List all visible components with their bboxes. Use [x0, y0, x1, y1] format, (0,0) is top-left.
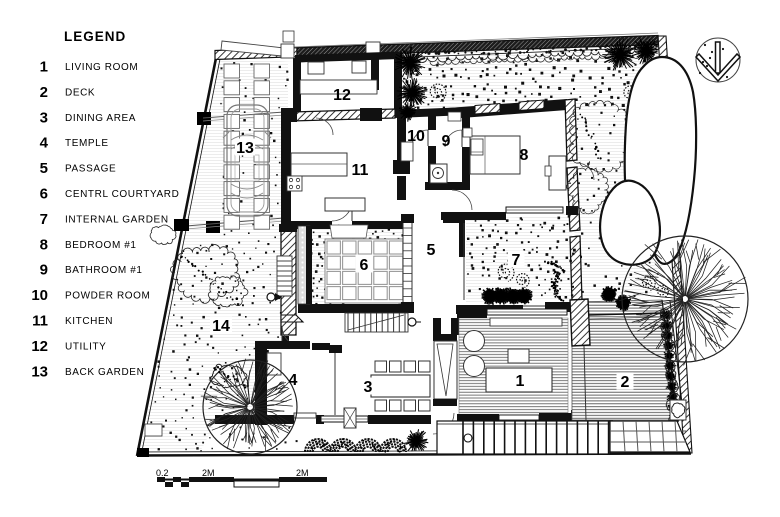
svg-text:3: 3: [364, 379, 373, 396]
svg-text:9: 9: [442, 133, 451, 150]
svg-text:13: 13: [31, 363, 48, 380]
svg-text:UTILITY: UTILITY: [65, 341, 106, 352]
svg-text:POWDER ROOM: POWDER ROOM: [65, 291, 151, 302]
svg-text:1: 1: [516, 373, 525, 390]
svg-text:LIVING ROOM: LIVING ROOM: [65, 62, 138, 73]
svg-text:DECK: DECK: [65, 87, 95, 98]
svg-text:BATHROOM #1: BATHROOM #1: [65, 265, 143, 276]
svg-text:4: 4: [40, 135, 49, 152]
svg-text:3: 3: [40, 109, 48, 126]
svg-text:BEDROOM #1: BEDROOM #1: [65, 240, 137, 251]
svg-text:DINING AREA: DINING AREA: [65, 113, 136, 124]
svg-text:13: 13: [236, 140, 254, 157]
svg-text:5: 5: [427, 242, 436, 259]
svg-text:KITCHEN: KITCHEN: [65, 316, 113, 327]
svg-text:INTERNAL GARDEN: INTERNAL GARDEN: [65, 214, 169, 225]
svg-text:6: 6: [40, 186, 48, 203]
svg-text:5: 5: [40, 160, 48, 177]
svg-text:1: 1: [40, 59, 48, 76]
svg-text:14: 14: [212, 318, 230, 335]
svg-text:12: 12: [333, 87, 351, 104]
svg-text:9: 9: [40, 262, 48, 279]
svg-text:2M: 2M: [296, 468, 309, 478]
svg-text:TEMPLE: TEMPLE: [65, 138, 109, 149]
svg-text:8: 8: [40, 236, 48, 253]
svg-text:PASSAGE: PASSAGE: [65, 164, 116, 175]
svg-text:BACK GARDEN: BACK GARDEN: [65, 367, 144, 378]
svg-text:7: 7: [512, 252, 521, 269]
svg-text:2: 2: [40, 84, 48, 101]
svg-text:0.2: 0.2: [156, 468, 169, 478]
svg-text:4: 4: [289, 372, 298, 389]
svg-text:7: 7: [40, 211, 48, 228]
svg-text:10: 10: [31, 287, 48, 304]
svg-text:2M: 2M: [202, 468, 215, 478]
svg-text:6: 6: [360, 257, 369, 274]
svg-text:8: 8: [520, 147, 529, 164]
svg-text:12: 12: [31, 338, 48, 355]
svg-text:CENTRL COURTYARD: CENTRL COURTYARD: [65, 189, 179, 200]
svg-text:LEGEND: LEGEND: [64, 29, 126, 44]
svg-text:11: 11: [352, 162, 369, 179]
svg-text:10: 10: [407, 128, 425, 145]
svg-text:11: 11: [32, 313, 48, 330]
svg-text:2: 2: [621, 374, 630, 391]
